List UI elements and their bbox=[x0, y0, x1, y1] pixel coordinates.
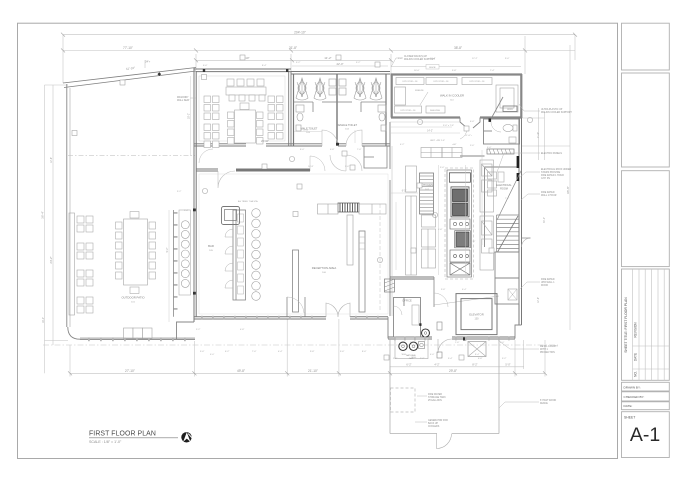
svg-text:6'-4": 6'-4" bbox=[462, 289, 467, 291]
svg-text:REVISION: REVISION bbox=[634, 322, 638, 338]
svg-text:30'-2": 30'-2" bbox=[188, 113, 191, 119]
svg-text:100: 100 bbox=[475, 318, 480, 321]
svg-text:9'-2": 9'-2" bbox=[177, 191, 182, 193]
svg-text:STAIRS PROVIDE: STAIRS PROVIDE bbox=[541, 171, 561, 174]
svg-text:DATE: DATE bbox=[634, 353, 638, 361]
svg-text:5'-2": 5'-2" bbox=[410, 342, 415, 344]
svg-text:CLOSER RACK(S) W/: CLOSER RACK(S) W/ bbox=[404, 55, 427, 58]
svg-text:NO.: NO. bbox=[634, 371, 638, 377]
svg-text:WALL 1 HOUR: WALL 1 HOUR bbox=[541, 194, 557, 197]
svg-text:5'-0": 5'-0" bbox=[505, 362, 510, 366]
svg-text:7'-4": 7'-4" bbox=[490, 70, 495, 72]
svg-text:RECEPTION AREA: RECEPTION AREA bbox=[312, 266, 337, 270]
svg-text:FENCE: FENCE bbox=[540, 403, 548, 405]
svg-text:1'-6": 1'-6" bbox=[455, 342, 460, 344]
svg-text:6' HIGH WOOD: 6' HIGH WOOD bbox=[540, 400, 556, 402]
svg-text:GYP. PG: GYP. PG bbox=[541, 178, 550, 180]
svg-text:7'-2": 7'-2" bbox=[505, 198, 510, 200]
svg-text:5'-2": 5'-2" bbox=[356, 62, 361, 64]
svg-text:2'-0": 2'-0" bbox=[500, 342, 505, 344]
svg-text:9'-6": 9'-6" bbox=[345, 166, 350, 168]
svg-text:FIRST FLOOR PLAN: FIRST FLOOR PLAN bbox=[89, 431, 156, 438]
svg-text:FIRE WATER: FIRE WATER bbox=[428, 393, 442, 396]
svg-text:OFFICE: OFFICE bbox=[402, 299, 412, 303]
svg-text:24'+: 24'+ bbox=[145, 60, 151, 64]
svg-text:8'-0": 8'-0" bbox=[362, 351, 367, 353]
svg-text:4'-2": 4'-2" bbox=[400, 144, 405, 146]
svg-text:4'-8": 4'-8" bbox=[240, 329, 245, 331]
svg-text:96'-8": 96'-8" bbox=[566, 186, 570, 194]
svg-text:ROOM: ROOM bbox=[500, 188, 508, 191]
svg-text:AS TIRED TUA STA: AS TIRED TUA STA bbox=[238, 200, 258, 203]
svg-text:DRY STOR + 36: DRY STOR + 36 bbox=[401, 110, 417, 112]
svg-text:5'-6": 5'-6" bbox=[340, 351, 345, 353]
svg-text:4'-4": 4'-4" bbox=[278, 351, 283, 353]
svg-text:6'-2": 6'-2" bbox=[225, 351, 230, 353]
svg-text:METAL CANOPY: METAL CANOPY bbox=[540, 345, 558, 348]
svg-text:27'-10": 27'-10" bbox=[125, 369, 135, 373]
svg-text:GAS: GAS bbox=[409, 357, 414, 360]
svg-text:SCALE : 1/8" = 1'-0": SCALE : 1/8" = 1'-0" bbox=[89, 440, 122, 444]
svg-text:5'-0": 5'-0" bbox=[200, 351, 205, 353]
svg-text:24'-2": 24'-2" bbox=[49, 256, 53, 263]
svg-text:6'-8": 6'-8" bbox=[478, 358, 483, 360]
svg-text:5'-8": 5'-8" bbox=[452, 70, 457, 72]
svg-text:9'-8": 9'-8" bbox=[441, 289, 446, 291]
svg-text:CHECKED BY:: CHECKED BY: bbox=[624, 395, 645, 399]
svg-text:FIRE RATED: FIRE RATED bbox=[541, 191, 555, 194]
svg-text:18'-2": 18'-2" bbox=[42, 317, 45, 323]
svg-text:7'-0": 7'-0" bbox=[357, 149, 362, 151]
svg-text:OUTDOOR PATIO: OUTDOOR PATIO bbox=[121, 296, 145, 300]
svg-text:16'-0": 16'-0" bbox=[414, 70, 420, 72]
svg-text:5'-4": 5'-4" bbox=[448, 358, 453, 360]
svg-text:BAR: BAR bbox=[208, 244, 214, 248]
svg-text:4'-2": 4'-2" bbox=[434, 362, 439, 366]
svg-text:PROJECTION: PROJECTION bbox=[540, 352, 555, 354]
svg-text:29'-8": 29'-8" bbox=[449, 369, 457, 373]
svg-text:8'-4": 8'-4" bbox=[262, 65, 267, 67]
svg-text:DRAWN BY:: DRAWN BY: bbox=[624, 385, 641, 389]
svg-text:6'-0": 6'-0" bbox=[210, 354, 215, 356]
svg-text:25'GALLONS: 25'GALLONS bbox=[428, 399, 442, 402]
svg-text:+60": +60" bbox=[452, 144, 457, 146]
svg-text:ULTRA PLASTIC UP: ULTRA PLASTIC UP bbox=[541, 108, 563, 111]
svg-text:SHEET TITLE: FIRST FLOOR PLAN: SHEET TITLE: FIRST FLOOR PLAN bbox=[624, 297, 628, 353]
svg-text:ELECTRICAL ROOF UNDER: ELECTRICAL ROOF UNDER bbox=[541, 168, 572, 171]
svg-text:SHELVING: SHELVING bbox=[430, 110, 440, 112]
svg-text:DOOR: DOOR bbox=[541, 285, 548, 287]
svg-text:12'-6": 12'-6" bbox=[537, 297, 540, 303]
svg-text:4'-0": 4'-0" bbox=[430, 354, 435, 356]
svg-text:NATURAL: NATURAL bbox=[406, 354, 417, 357]
svg-text:10'-8": 10'-8" bbox=[308, 166, 314, 168]
svg-text:6'-0": 6'-0" bbox=[402, 191, 407, 193]
svg-text:UNIT +PR 1'-0": UNIT +PR 1'-0" bbox=[430, 140, 445, 142]
svg-text:WITH 1: WITH 1 bbox=[540, 349, 549, 351]
svg-text:SHEET: SHEET bbox=[624, 416, 635, 420]
svg-text:12'-2": 12'-2" bbox=[472, 58, 478, 60]
svg-text:3'-2": 3'-2" bbox=[196, 329, 201, 331]
svg-text:6'-0": 6'-0" bbox=[487, 147, 492, 149]
svg-text:3'-2": 3'-2" bbox=[502, 358, 507, 360]
svg-text:WALK IN COOLER: WALK IN COOLER bbox=[440, 94, 464, 98]
svg-text:FIRE RATED: FIRE RATED bbox=[541, 278, 555, 281]
svg-text:FIRE RATED 1 HOUR: FIRE RATED 1 HOUR bbox=[541, 174, 564, 177]
svg-text:ELECTRIC PANELS: ELECTRIC PANELS bbox=[541, 152, 562, 155]
svg-text:COOLERS: COOLERS bbox=[428, 426, 440, 428]
svg-text:8'-2": 8'-2" bbox=[472, 362, 477, 366]
svg-text:21'-10": 21'-10" bbox=[308, 369, 318, 373]
svg-text:20'-10": 20'-10" bbox=[261, 139, 269, 143]
svg-text:77'-10": 77'-10" bbox=[123, 46, 133, 50]
svg-text:7'-0": 7'-0" bbox=[252, 351, 257, 353]
svg-text:BACK UP: BACK UP bbox=[428, 422, 439, 425]
svg-text:6'-0": 6'-0" bbox=[470, 121, 475, 123]
svg-text:10'-0": 10'-0" bbox=[303, 130, 309, 132]
svg-text:7'-2": 7'-2" bbox=[420, 358, 425, 360]
svg-text:7'-10": 7'-10" bbox=[537, 132, 540, 138]
svg-text:A-1: A-1 bbox=[630, 424, 660, 446]
svg-text:DATE:: DATE: bbox=[624, 404, 633, 408]
svg-text:9'-8": 9'-8" bbox=[310, 351, 315, 353]
svg-text:3'-0": 3'-0" bbox=[398, 58, 403, 60]
svg-text:STORAGE TANK: STORAGE TANK bbox=[428, 396, 446, 399]
svg-text:9'-0": 9'-0" bbox=[505, 58, 510, 60]
svg-text:10'-4": 10'-4" bbox=[430, 58, 436, 60]
svg-text:2'-6": 2'-6" bbox=[393, 358, 398, 360]
svg-text:+1'-6"+: +1'-6"+ bbox=[465, 135, 473, 137]
svg-text:UPR WALL 1: UPR WALL 1 bbox=[541, 281, 555, 284]
svg-text:9'-2": 9'-2" bbox=[166, 247, 169, 252]
svg-text:MASONRY: MASONRY bbox=[177, 96, 189, 99]
svg-text:DRY STOR + 36: DRY STOR + 36 bbox=[470, 81, 486, 83]
svg-text:6'-8": 6'-8" bbox=[330, 149, 335, 151]
svg-text:12'-8": 12'-8" bbox=[50, 157, 53, 163]
svg-text:WALL SEAT: WALL SEAT bbox=[177, 99, 190, 102]
svg-text:5'-2": 5'-2" bbox=[296, 62, 301, 64]
svg-text:49'-8": 49'-8" bbox=[237, 369, 245, 373]
svg-text:FREEZE: FREEZE bbox=[415, 90, 424, 92]
svg-text:WALKIN COOLER SUPPORT: WALKIN COOLER SUPPORT bbox=[541, 111, 572, 114]
svg-text:DRY STOR + 36: DRY STOR + 36 bbox=[434, 81, 450, 83]
svg-text:ELEVATOR: ELEVATOR bbox=[469, 313, 483, 317]
svg-text:3'-6": 3'-6" bbox=[470, 145, 475, 147]
svg-text:204'-10": 204'-10" bbox=[294, 31, 306, 35]
svg-text:3'-0": 3'-0" bbox=[440, 167, 445, 169]
svg-text:GENERATOR FOR: GENERATOR FOR bbox=[428, 419, 448, 422]
svg-text:FRZR: FRZR bbox=[507, 109, 513, 111]
svg-text:6'-0": 6'-0" bbox=[203, 65, 208, 67]
svg-text:3'-0" x 7'-0": 3'-0" x 7'-0" bbox=[443, 125, 454, 127]
svg-text:36'-4": 36'-4" bbox=[41, 211, 45, 219]
svg-text:2'-4": 2'-4" bbox=[184, 210, 189, 212]
svg-text:14'-2": 14'-2" bbox=[427, 131, 433, 133]
svg-text:8'-4": 8'-4" bbox=[475, 354, 480, 356]
svg-text:FEMALE TOILET: FEMALE TOILET bbox=[337, 123, 357, 127]
svg-text:DRY STOR + 36: DRY STOR + 36 bbox=[403, 81, 419, 83]
svg-text:11'-2": 11'-2" bbox=[324, 56, 331, 60]
svg-text:38'-8": 38'-8" bbox=[454, 46, 462, 50]
svg-text:8'-0": 8'-0" bbox=[300, 149, 305, 151]
svg-text:22'-0": 22'-0" bbox=[336, 62, 343, 66]
svg-text:ROOF: ROOF bbox=[429, 67, 436, 69]
svg-text:6'-2": 6'-2" bbox=[406, 362, 411, 366]
svg-text:34'-2": 34'-2" bbox=[543, 217, 546, 223]
